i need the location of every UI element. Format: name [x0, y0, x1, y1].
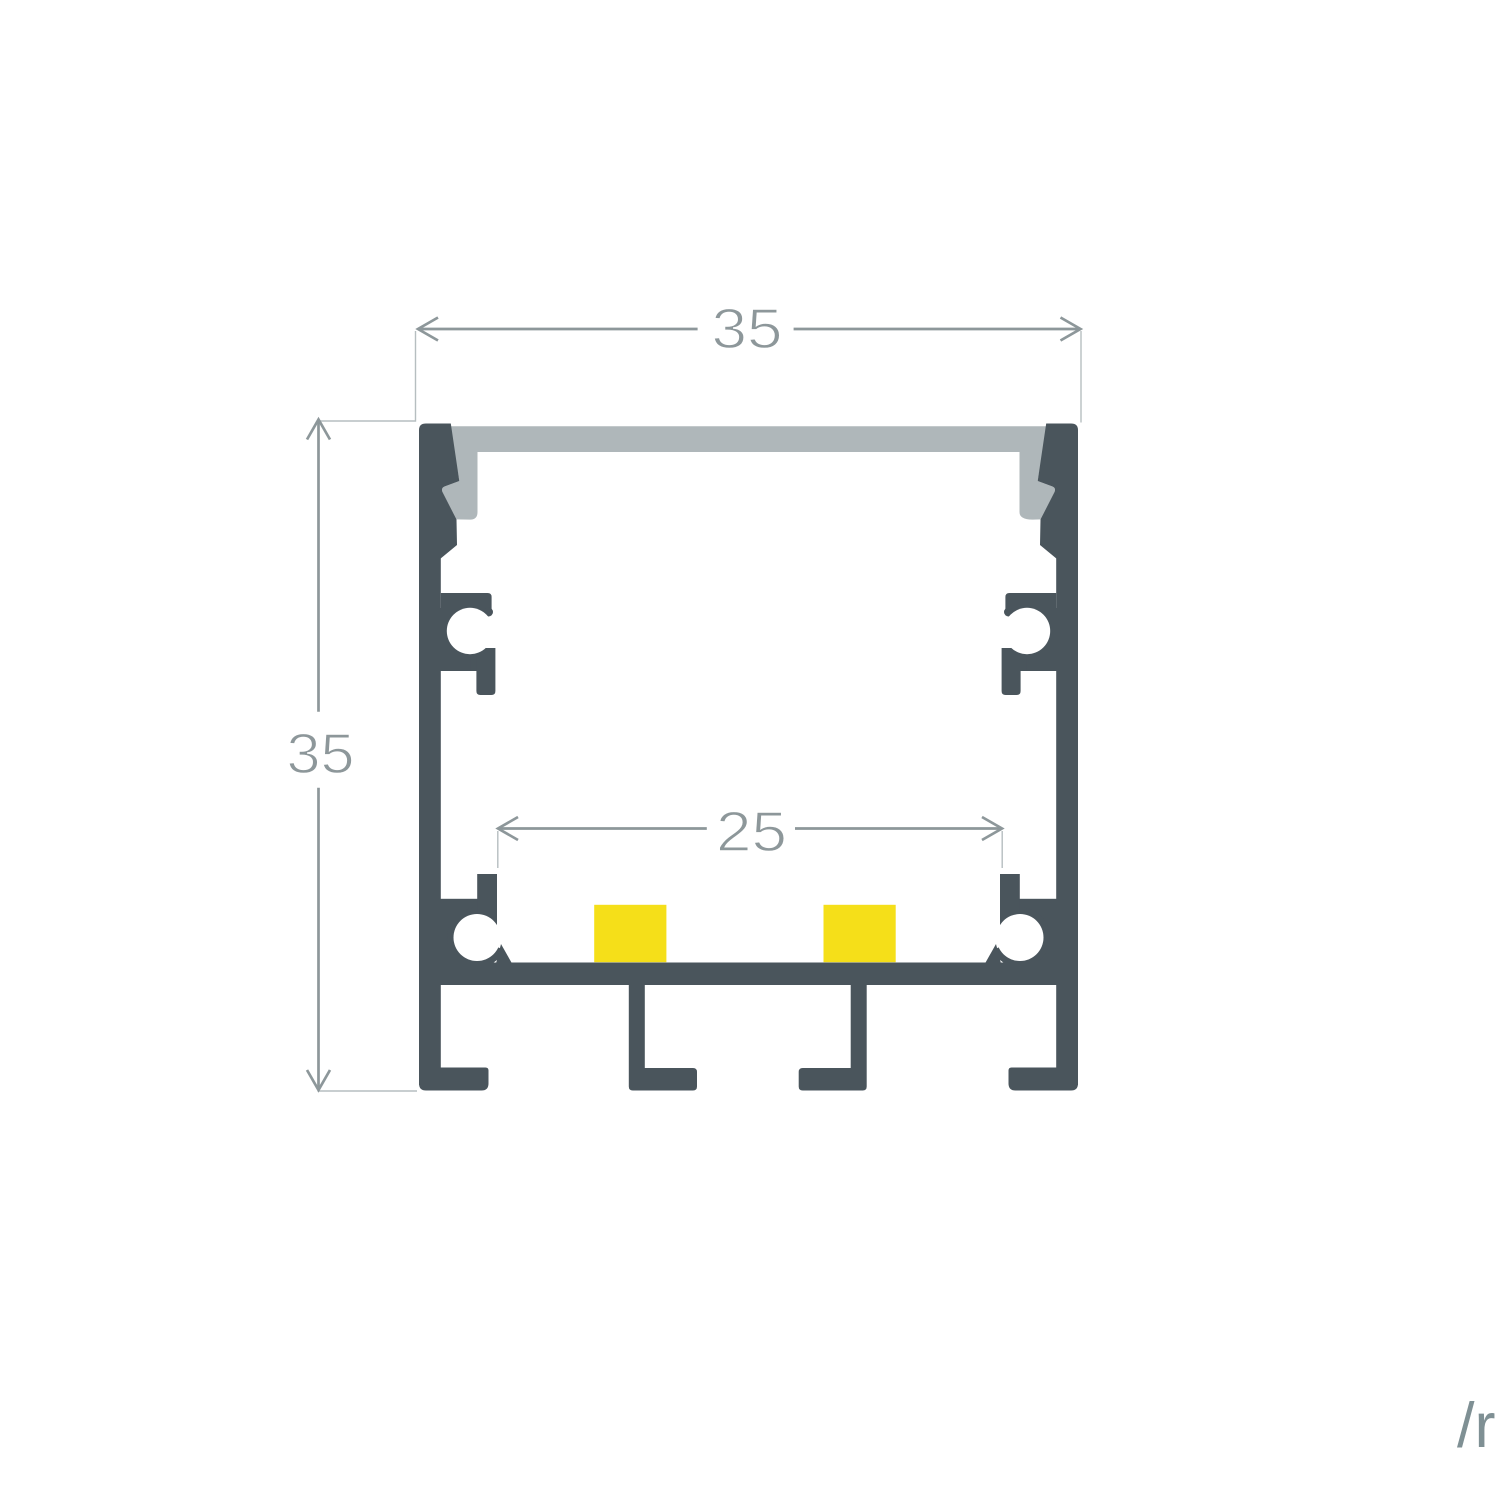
- svg-text:35: 35: [287, 722, 355, 786]
- svg-text:/r: /r: [1457, 1391, 1495, 1461]
- svg-text:25: 25: [716, 800, 787, 864]
- svg-text:35: 35: [712, 297, 783, 361]
